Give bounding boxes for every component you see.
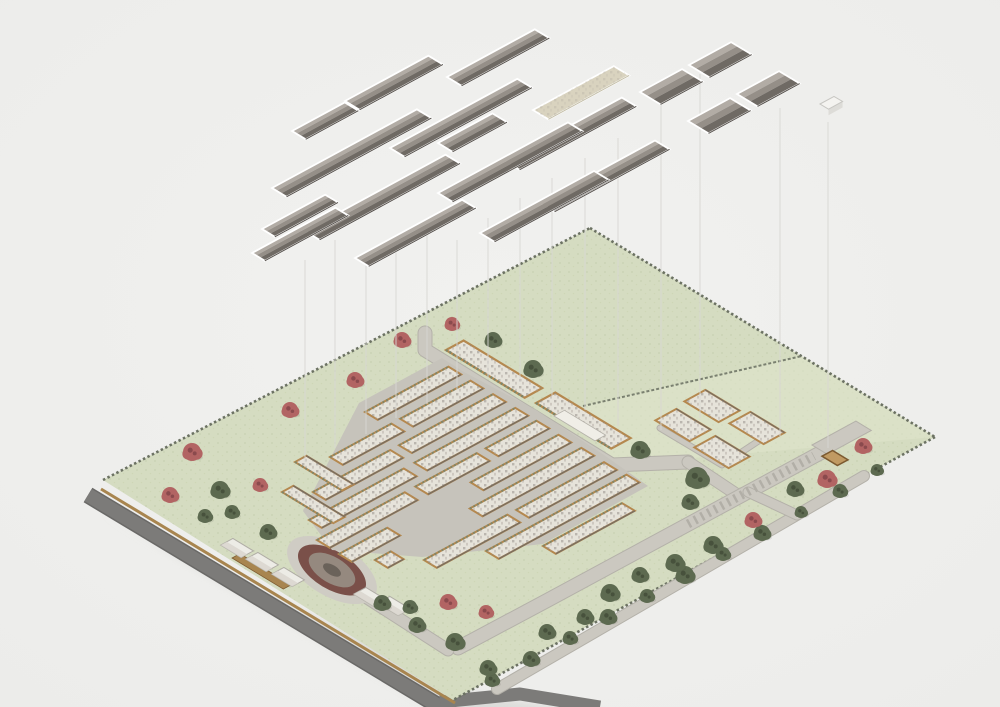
green-tree-detail	[874, 467, 877, 470]
red-tree-detail	[453, 324, 456, 327]
green-tree-detail	[801, 512, 804, 515]
red-tree-detail	[828, 478, 832, 482]
red-tree-detail	[171, 494, 175, 498]
green-tree-detail	[571, 638, 574, 641]
green-tree-detail	[484, 664, 488, 668]
red-tree-detail	[257, 482, 261, 486]
red-tree-detail	[483, 609, 487, 613]
green-tree-detail	[691, 501, 695, 505]
red-tree-detail	[286, 406, 290, 410]
green-tree-detail	[489, 677, 493, 681]
green-tree-detail	[692, 473, 698, 479]
green-tree-detail	[837, 488, 841, 492]
green-tree-detail	[534, 368, 538, 372]
green-tree-detail	[407, 604, 411, 608]
green-tree-detail	[264, 528, 268, 532]
green-tree-detail	[636, 571, 640, 575]
green-tree-detail	[671, 559, 676, 564]
green-tree-detail	[720, 551, 724, 555]
green-tree-detail	[606, 589, 611, 594]
red-tree-detail	[749, 516, 753, 520]
red-tree-detail	[261, 485, 264, 488]
illustration-canvas	[0, 0, 1000, 707]
red-tree-detail	[449, 601, 453, 605]
green-tree-detail	[202, 513, 206, 517]
green-tree-detail	[676, 562, 680, 566]
green-tree-detail	[489, 336, 493, 340]
green-tree-detail	[636, 446, 641, 451]
green-tree-detail	[686, 498, 690, 502]
green-tree-detail	[383, 602, 387, 606]
green-tree-detail	[451, 638, 456, 643]
green-tree-detail	[877, 470, 880, 473]
red-tree-detail	[351, 376, 355, 380]
red-tree-detail	[193, 451, 197, 455]
green-tree-detail	[229, 509, 233, 513]
green-tree-detail	[581, 613, 585, 617]
green-tree-detail	[413, 621, 417, 625]
green-tree-detail	[709, 541, 714, 546]
green-tree-detail	[456, 641, 460, 645]
green-tree-detail	[686, 574, 690, 578]
green-tree-detail	[529, 365, 534, 370]
green-tree-detail	[543, 628, 547, 632]
green-tree-detail	[796, 488, 800, 492]
green-tree-detail	[758, 529, 762, 533]
red-tree-detail	[449, 321, 453, 325]
red-tree-detail	[403, 339, 407, 343]
green-tree-detail	[489, 667, 493, 671]
green-tree-detail	[698, 477, 703, 482]
red-tree-detail	[864, 445, 868, 449]
red-tree-detail	[859, 442, 863, 446]
green-tree-detail	[216, 486, 221, 491]
green-tree-detail	[609, 616, 613, 620]
green-tree-detail	[493, 680, 496, 683]
green-tree-detail	[378, 599, 382, 603]
green-tree-detail	[841, 491, 844, 494]
green-tree-detail	[641, 574, 645, 578]
green-tree-detail	[411, 607, 414, 610]
green-tree-detail	[269, 531, 273, 535]
green-tree-detail	[644, 593, 648, 597]
green-tree-detail	[567, 635, 571, 639]
green-tree-detail	[233, 512, 236, 515]
green-tree-detail	[548, 631, 552, 635]
green-tree-detail	[798, 509, 801, 512]
red-tree-detail	[356, 379, 360, 383]
red-tree-detail	[398, 336, 402, 340]
exploded-axonometric-scene	[0, 0, 1000, 707]
green-tree-detail	[221, 489, 225, 493]
green-tree-detail	[791, 485, 795, 489]
red-tree-detail	[166, 491, 170, 495]
red-tree-detail	[291, 409, 295, 413]
green-tree-detail	[641, 449, 645, 453]
green-tree-detail	[648, 596, 651, 599]
green-tree-detail	[527, 655, 531, 659]
green-tree-detail	[611, 592, 615, 596]
red-tree-detail	[444, 598, 448, 602]
green-tree-detail	[206, 516, 209, 519]
green-tree-detail	[724, 554, 727, 557]
red-tree-detail	[188, 448, 193, 453]
red-tree-detail	[754, 519, 758, 523]
red-tree-detail	[487, 612, 490, 615]
green-tree-detail	[532, 658, 536, 662]
red-tree-detail	[823, 475, 828, 480]
green-tree-detail	[763, 532, 767, 536]
green-tree-detail	[586, 616, 590, 620]
green-tree-detail	[681, 571, 686, 576]
green-tree-detail	[604, 613, 608, 617]
green-tree-detail	[494, 339, 498, 343]
green-tree-detail	[714, 544, 718, 548]
green-tree-detail	[418, 624, 422, 628]
